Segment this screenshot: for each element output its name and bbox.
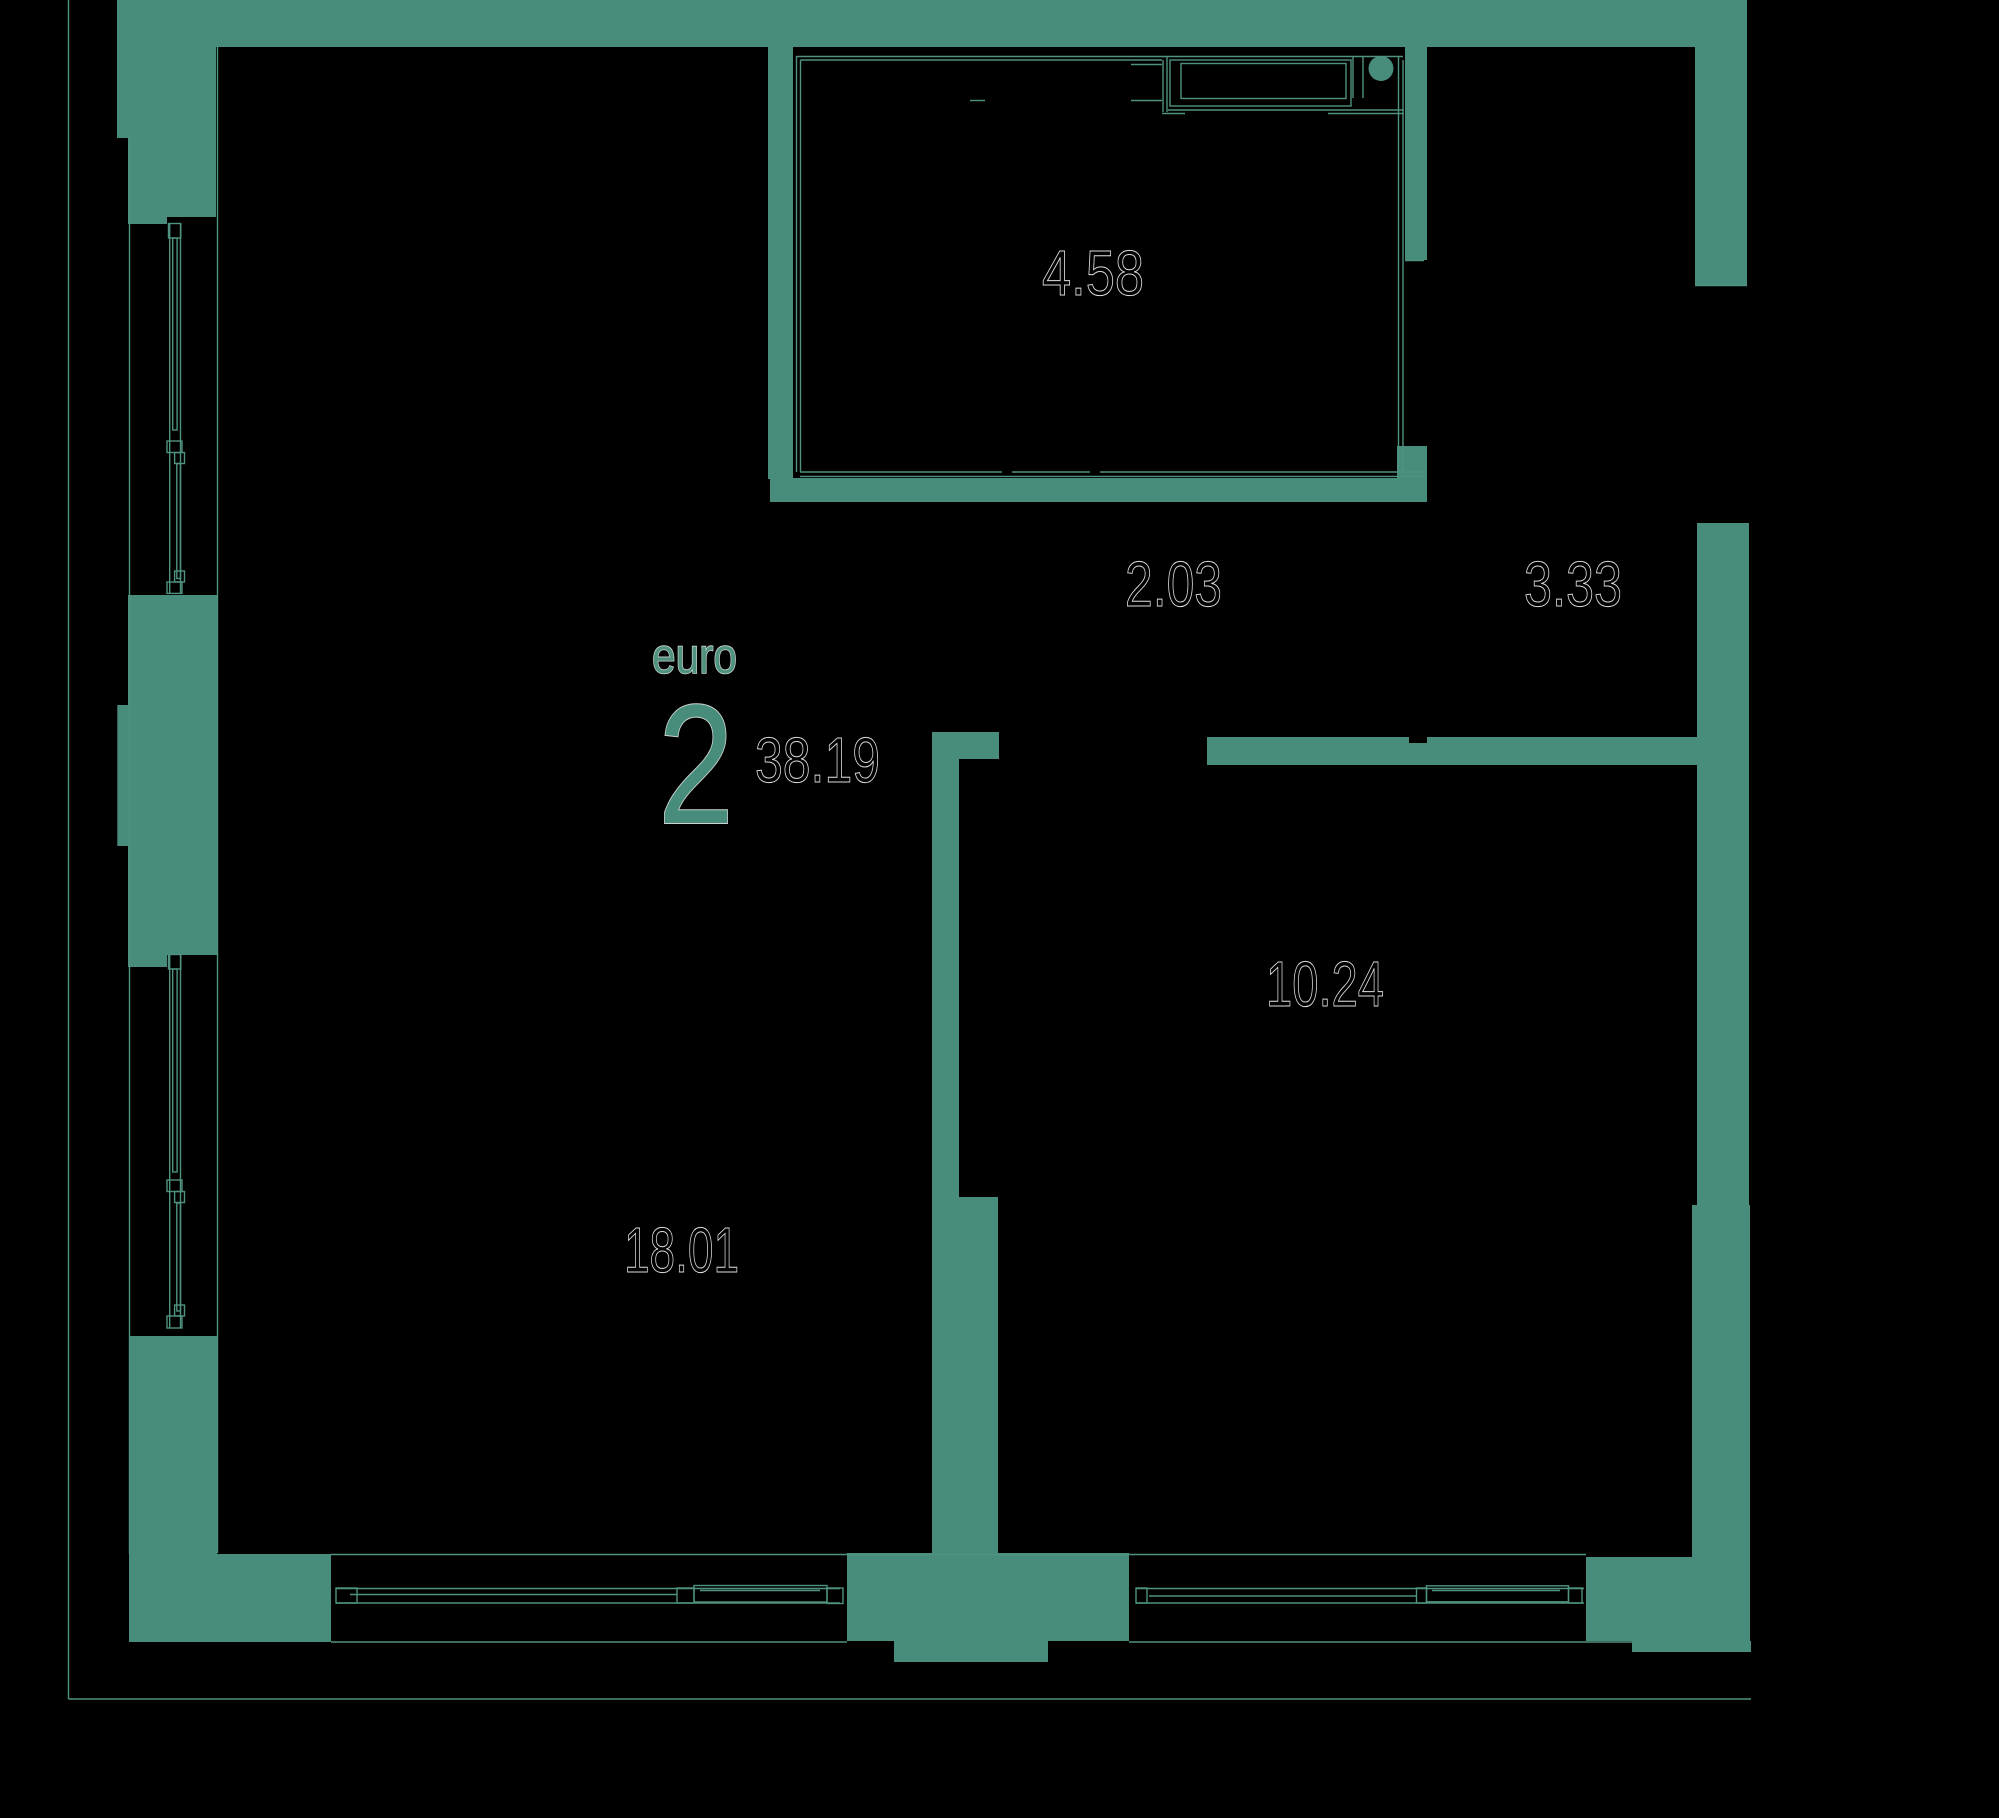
- svg-text:2: 2: [658, 670, 734, 860]
- svg-text:4.58: 4.58: [1042, 237, 1144, 309]
- svg-text:18.01: 18.01: [624, 1214, 739, 1286]
- svg-text:2.03: 2.03: [1125, 548, 1222, 620]
- svg-text:10.24: 10.24: [1266, 948, 1384, 1020]
- svg-text:3.33: 3.33: [1524, 548, 1622, 620]
- svg-text:38.19: 38.19: [755, 724, 880, 796]
